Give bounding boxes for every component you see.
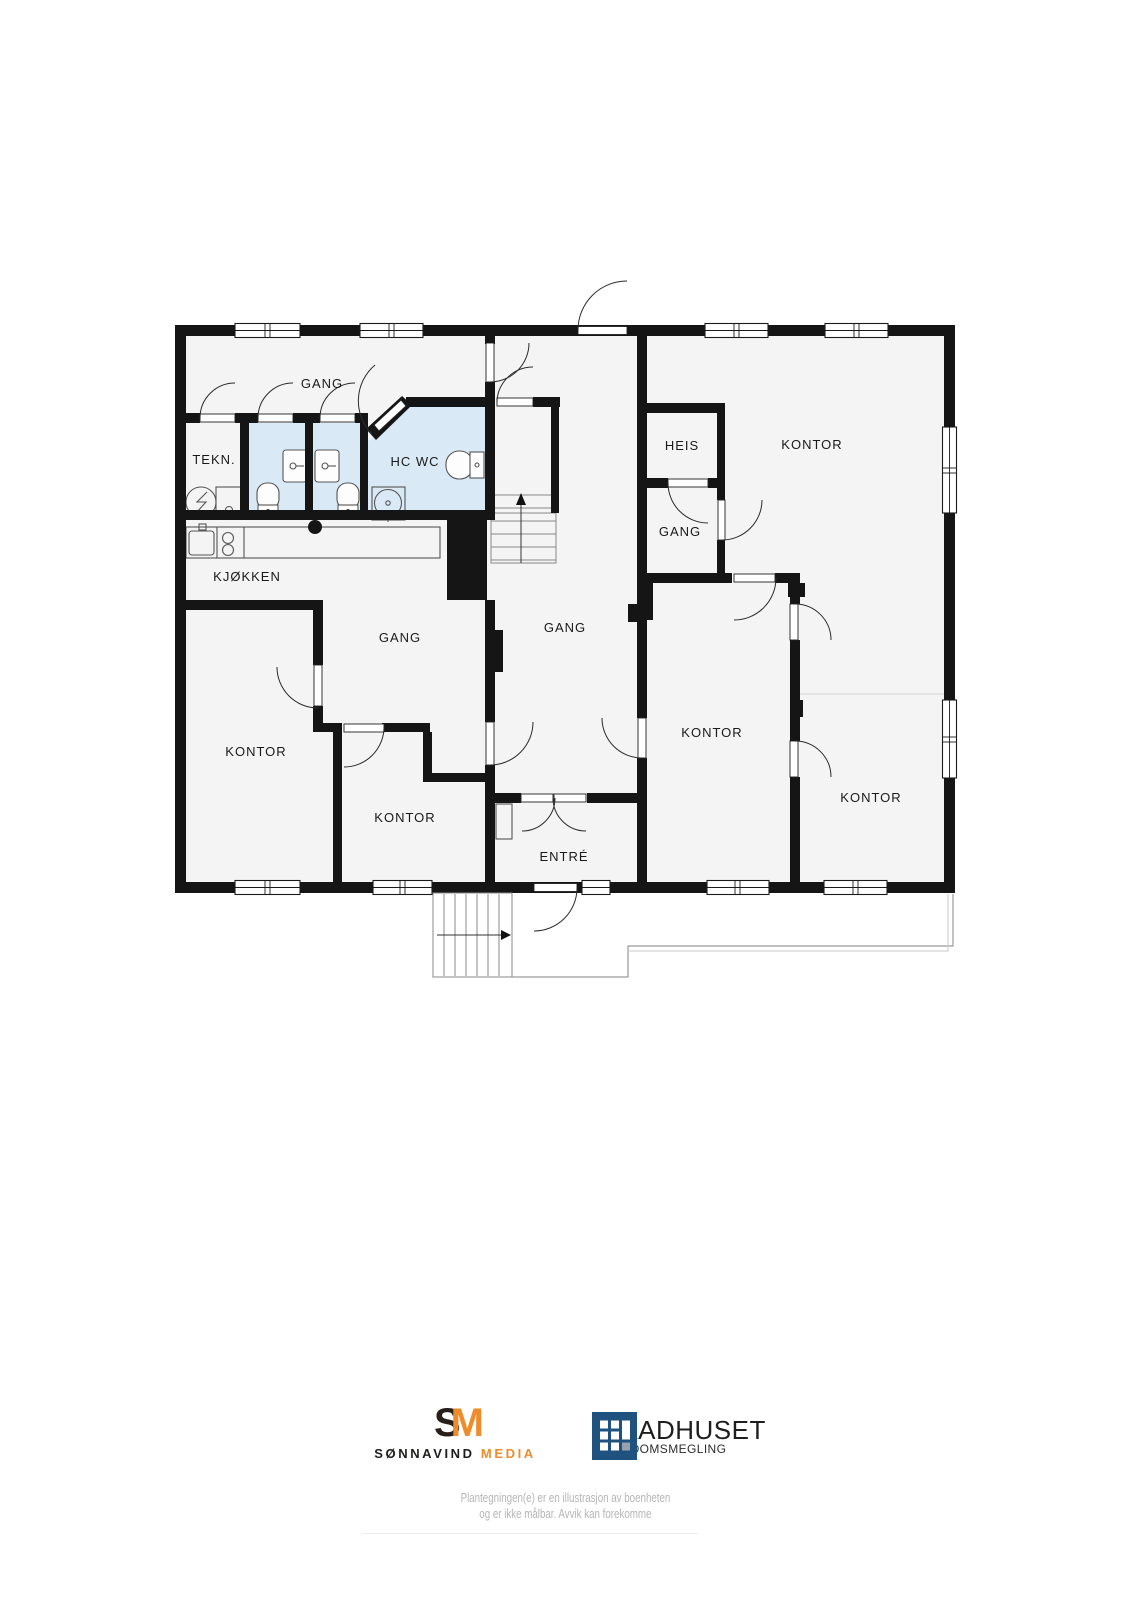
room-label-heis: HEIS — [665, 438, 699, 453]
room-label-gang-midleft: GANG — [379, 630, 421, 645]
room-label-entre: ENTRÉ — [539, 849, 588, 864]
room-label-gang-topleft: GANG — [301, 376, 343, 391]
terrace-outline — [512, 894, 953, 977]
room-label-kontor-centerright: KONTOR — [681, 725, 742, 740]
floor-plan: GANG TEKN. HC WC KJØKKEN GANG GANG HEIS … — [0, 0, 1131, 1600]
footer-divider — [362, 1533, 698, 1534]
room-label-gang-small: GANG — [659, 524, 701, 539]
logo-letter-m: M — [451, 1401, 476, 1445]
exterior-stairs-icon — [433, 893, 512, 977]
window — [373, 881, 432, 895]
room-label-kontor-topright: KONTOR — [781, 437, 842, 452]
window — [235, 881, 300, 895]
room-label-kontor-bottomleft: KONTOR — [225, 744, 286, 759]
sonnavind-media-wordmark: SØNNAVIND MEDIA — [340, 1446, 570, 1461]
room-label-kontor-right: KONTOR — [840, 790, 901, 805]
stairs-direction-arrow-icon — [501, 930, 511, 940]
window — [707, 881, 769, 895]
window — [943, 427, 957, 513]
media-logo-accent: MEDIA — [481, 1446, 536, 1461]
window — [825, 324, 888, 338]
toilet-icon — [446, 451, 473, 479]
disclaimer-line-2: og er ikke målbar. Avvik kan forekomme — [479, 1507, 651, 1523]
window — [360, 324, 423, 338]
entrance-door — [534, 884, 577, 932]
room-label-hcwc: HC WC — [390, 454, 439, 469]
room-label-gang-central: GANG — [544, 620, 586, 635]
exterior-door — [578, 281, 627, 335]
media-logo-name: SØNNAVIND — [374, 1446, 474, 1461]
room-label-tekn: TEKN. — [192, 452, 235, 467]
floor-plan-page: GANG TEKN. HC WC KJØKKEN GANG GANG HEIS … — [0, 0, 1131, 1600]
window — [582, 881, 610, 895]
disclaimer-text: Plantegningen(e) er en illustrasjon av b… — [365, 1491, 765, 1522]
room-label-kontor-midbottom: KONTOR — [374, 810, 435, 825]
window — [705, 324, 768, 338]
logo-letter-s: S — [434, 1401, 453, 1445]
sonnavind-media-logo-icon: SM — [415, 1403, 495, 1443]
window — [943, 700, 957, 778]
disclaimer-line-1: Plantegningen(e) er en illustrasjon av b… — [460, 1491, 670, 1507]
room-label-kjokken: KJØKKEN — [213, 569, 281, 584]
raadhuset-building-icon — [592, 1412, 637, 1460]
window — [235, 324, 300, 338]
raadhuset-logo: RAADHUSET EIENDOMSMEGLING — [592, 1412, 766, 1456]
window — [824, 881, 887, 895]
